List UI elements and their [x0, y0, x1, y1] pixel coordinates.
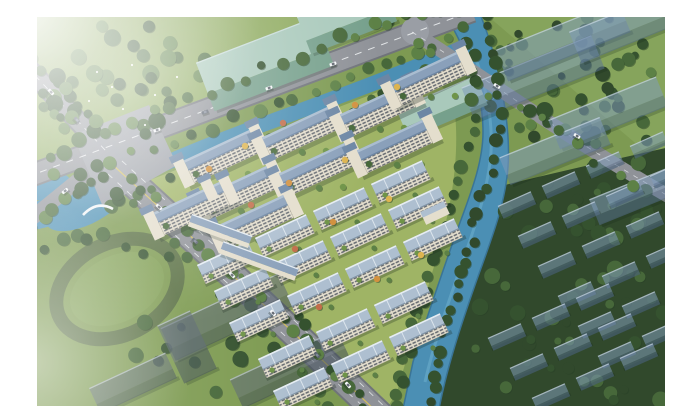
branch-road-tree	[539, 114, 546, 121]
forest-tree	[609, 395, 619, 405]
branch-road-tree	[627, 180, 639, 192]
river-bank-tree	[430, 381, 442, 393]
river-bank-tree	[454, 160, 468, 174]
branch-road-tree	[426, 48, 435, 57]
boulevard-tree	[355, 389, 364, 398]
river-bank-tree	[433, 359, 442, 368]
river-bank-tree	[457, 21, 468, 32]
river-bank-tree	[462, 247, 471, 256]
river-bank-tree	[471, 114, 480, 123]
forest-tree	[510, 305, 526, 321]
forest-tree	[631, 155, 646, 170]
framed-rendering	[0, 0, 688, 420]
river-bank-tree	[428, 371, 441, 384]
site-shrub	[327, 340, 332, 345]
river-bank-tree	[454, 265, 467, 278]
site-shrub	[356, 277, 361, 282]
accent-tree	[386, 196, 392, 202]
site-shrub	[394, 162, 400, 168]
avenue-tree	[444, 34, 453, 43]
river-bank-tree	[453, 176, 462, 185]
forest-tree	[620, 385, 629, 394]
forest-tree	[572, 194, 583, 205]
site-shrub	[341, 245, 346, 250]
forest-tree	[602, 82, 614, 94]
forest-tree	[563, 362, 575, 374]
river-bank-tree	[489, 154, 499, 164]
northeast-tree	[646, 67, 656, 77]
river-bank-tree	[464, 93, 478, 107]
site-shrub	[430, 345, 435, 350]
forest-tree	[500, 281, 510, 291]
river-bank-tree	[445, 305, 455, 315]
river-bank-tree	[489, 168, 498, 177]
river-bank-tree	[470, 127, 480, 137]
forest-tree	[523, 104, 537, 118]
site-shrub	[371, 245, 376, 250]
forest-tree	[594, 189, 601, 196]
branch-road-tree	[413, 38, 424, 49]
river-bank-tree	[464, 142, 474, 152]
river-bank-tree	[454, 279, 463, 288]
site-shrub	[342, 372, 347, 377]
site-shrub	[400, 93, 406, 99]
river-bank-tree	[496, 107, 509, 120]
site-shrub	[444, 250, 449, 255]
site-shrub	[385, 313, 390, 318]
river-bank-tree	[489, 56, 503, 70]
river-bank-tree	[422, 271, 433, 282]
avenue-tree	[396, 56, 404, 64]
forest-tree	[471, 344, 479, 352]
masterplan-rendering	[37, 17, 665, 406]
site-shrub	[328, 304, 333, 309]
river-bank-tree	[485, 36, 494, 45]
branch-road-tree	[616, 171, 626, 181]
branch-road-tree	[554, 125, 564, 135]
site-shrub	[357, 340, 362, 345]
branch-road-tree	[589, 159, 598, 168]
site-shrub	[313, 272, 318, 277]
river-bank-tree	[492, 90, 501, 99]
forest-tree	[575, 93, 587, 105]
forest-tree	[514, 30, 522, 38]
river-bank-tree	[470, 237, 480, 247]
river-bank-tree	[491, 72, 504, 85]
site-shrub	[400, 345, 405, 350]
accent-tree	[394, 84, 400, 90]
site-shrub	[299, 367, 304, 372]
masterplan-photo	[37, 17, 665, 406]
forest-tree	[605, 300, 614, 309]
site-shrub	[415, 313, 420, 318]
site-shrub	[314, 399, 319, 404]
northeast-tree	[525, 119, 536, 130]
branch-road-tree	[485, 93, 493, 101]
forest-tree	[514, 122, 524, 132]
river-bank-tree	[453, 292, 462, 301]
forest-tree	[562, 318, 570, 326]
river-bank-tree	[483, 22, 491, 30]
forest-tree	[526, 335, 535, 344]
site-shrub	[452, 93, 458, 99]
forest-tree	[472, 299, 489, 316]
forest-tree	[528, 131, 540, 143]
branch-road-tree	[517, 104, 524, 111]
avenue-tree	[382, 20, 392, 30]
river-bank-tree	[473, 190, 485, 202]
school-tree	[299, 318, 311, 330]
accent-tree	[316, 304, 322, 310]
site-shrub	[298, 304, 303, 309]
forest-tree	[611, 58, 624, 71]
forest-tree	[540, 200, 553, 213]
river-bank-tree	[467, 218, 476, 227]
accent-tree	[418, 252, 424, 258]
light-veil	[37, 17, 297, 406]
river-bank-tree	[397, 376, 410, 389]
accent-tree	[374, 276, 380, 282]
site-shrub	[386, 277, 391, 282]
river-bank-tree	[449, 190, 459, 200]
forest-tree	[500, 381, 512, 393]
forest-tree	[554, 338, 561, 345]
site-shrub	[399, 218, 404, 223]
site-shrub	[372, 372, 377, 377]
river-bank-tree	[489, 133, 503, 147]
river-bank-tree	[496, 125, 505, 134]
site-shrub	[428, 94, 434, 100]
avenue-tree	[381, 58, 391, 68]
forest-tree	[484, 268, 500, 284]
river-bank-tree	[390, 389, 402, 401]
